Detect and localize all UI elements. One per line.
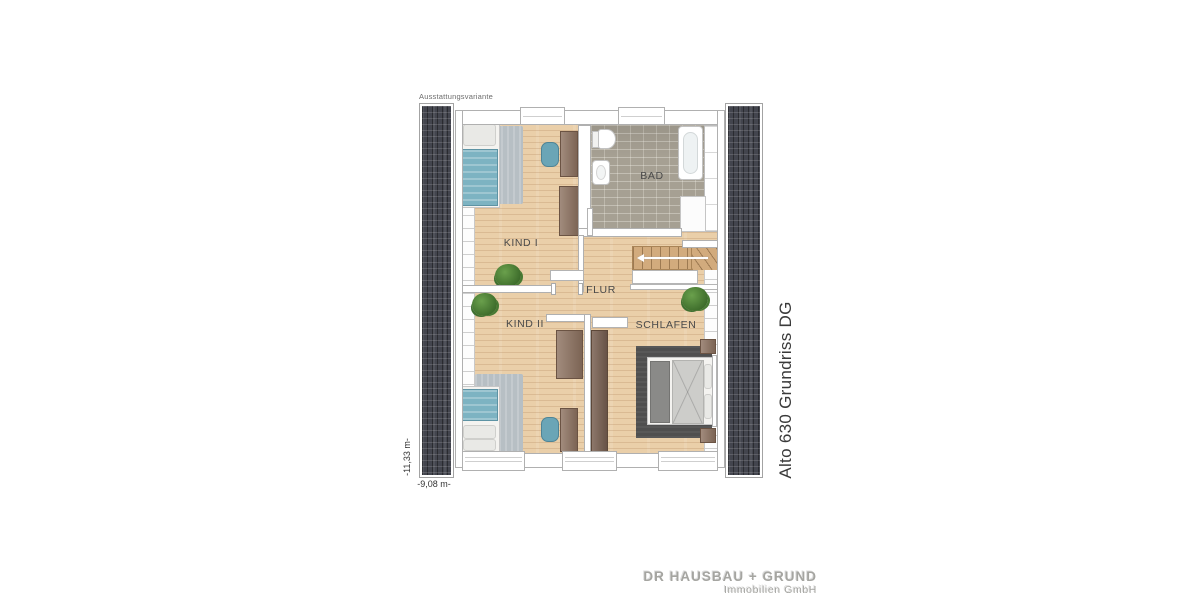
- door-jamb: [551, 283, 556, 295]
- dimension-height: -11,33 m-: [402, 438, 412, 476]
- company-name: DR HAUSBAU + GRUND: [643, 569, 817, 584]
- stairs-railing: [630, 284, 718, 290]
- door-bad: [587, 208, 593, 236]
- window-bottom-1: [462, 451, 525, 471]
- plan-title: Alto 630 Grundriss DG: [776, 301, 796, 478]
- window-top-2: [618, 107, 665, 125]
- window-top-1: [520, 107, 565, 125]
- stairs-direction-line: [644, 257, 708, 259]
- desk-chair-kind1: [541, 142, 559, 167]
- bed-schlafen: [647, 357, 713, 425]
- bathtub: [678, 126, 703, 180]
- desk-chair-kind2: [541, 417, 559, 442]
- variant-note: Ausstattungsvariante: [419, 92, 493, 101]
- door-kind1: [550, 270, 584, 281]
- exterior-wall-top: [455, 110, 725, 125]
- desk-kind1: [560, 131, 578, 177]
- door-schlafen: [592, 317, 628, 328]
- room-label-schlafen: SCHLAFEN: [636, 319, 697, 331]
- shower: [680, 196, 706, 232]
- wall-kind2-schlafen: [584, 314, 591, 453]
- desk-kind2: [560, 408, 578, 452]
- wall-bad-bottom: [578, 228, 682, 237]
- exterior-wall-right: [717, 110, 725, 468]
- room-label-kind2: KIND II: [506, 318, 544, 330]
- room-label-flur: FLUR: [586, 284, 616, 296]
- window-bottom-2: [562, 451, 617, 471]
- nightstand-top: [700, 339, 716, 354]
- room-label-kind1: KIND I: [504, 237, 539, 249]
- bed-kind1: [459, 121, 500, 208]
- room-label-bad: BAD: [640, 170, 663, 182]
- bed-kind2: [459, 386, 500, 453]
- wall-kind1-kind2: [462, 285, 552, 293]
- bathroom-closet: [704, 125, 718, 232]
- toilet-icon: [598, 129, 616, 149]
- cabinet-kind1: [559, 186, 579, 236]
- wardrobe-schlafen: [591, 330, 608, 453]
- window-bottom-3: [658, 451, 718, 471]
- company-subtitle: Immobilien GmbH: [643, 584, 817, 596]
- stairs-direction-arrow-icon: [637, 254, 644, 262]
- nightstand-bottom: [700, 428, 716, 443]
- roof-strip-left: [420, 104, 453, 477]
- company-branding: DR HAUSBAU + GRUND Immobilien GmbH: [643, 569, 817, 596]
- wall-shower-bottom: [682, 240, 718, 248]
- dimension-width: -9,08 m-: [417, 479, 451, 489]
- exterior-wall-left: [455, 110, 463, 468]
- floorplan-page: Ausstattungsvariante: [0, 0, 1200, 600]
- roof-strip-right: [726, 104, 762, 477]
- sink-icon: [592, 160, 610, 185]
- stairs-landing: [632, 270, 698, 284]
- wardrobe-kind2: [556, 330, 583, 379]
- door-jamb: [578, 283, 583, 295]
